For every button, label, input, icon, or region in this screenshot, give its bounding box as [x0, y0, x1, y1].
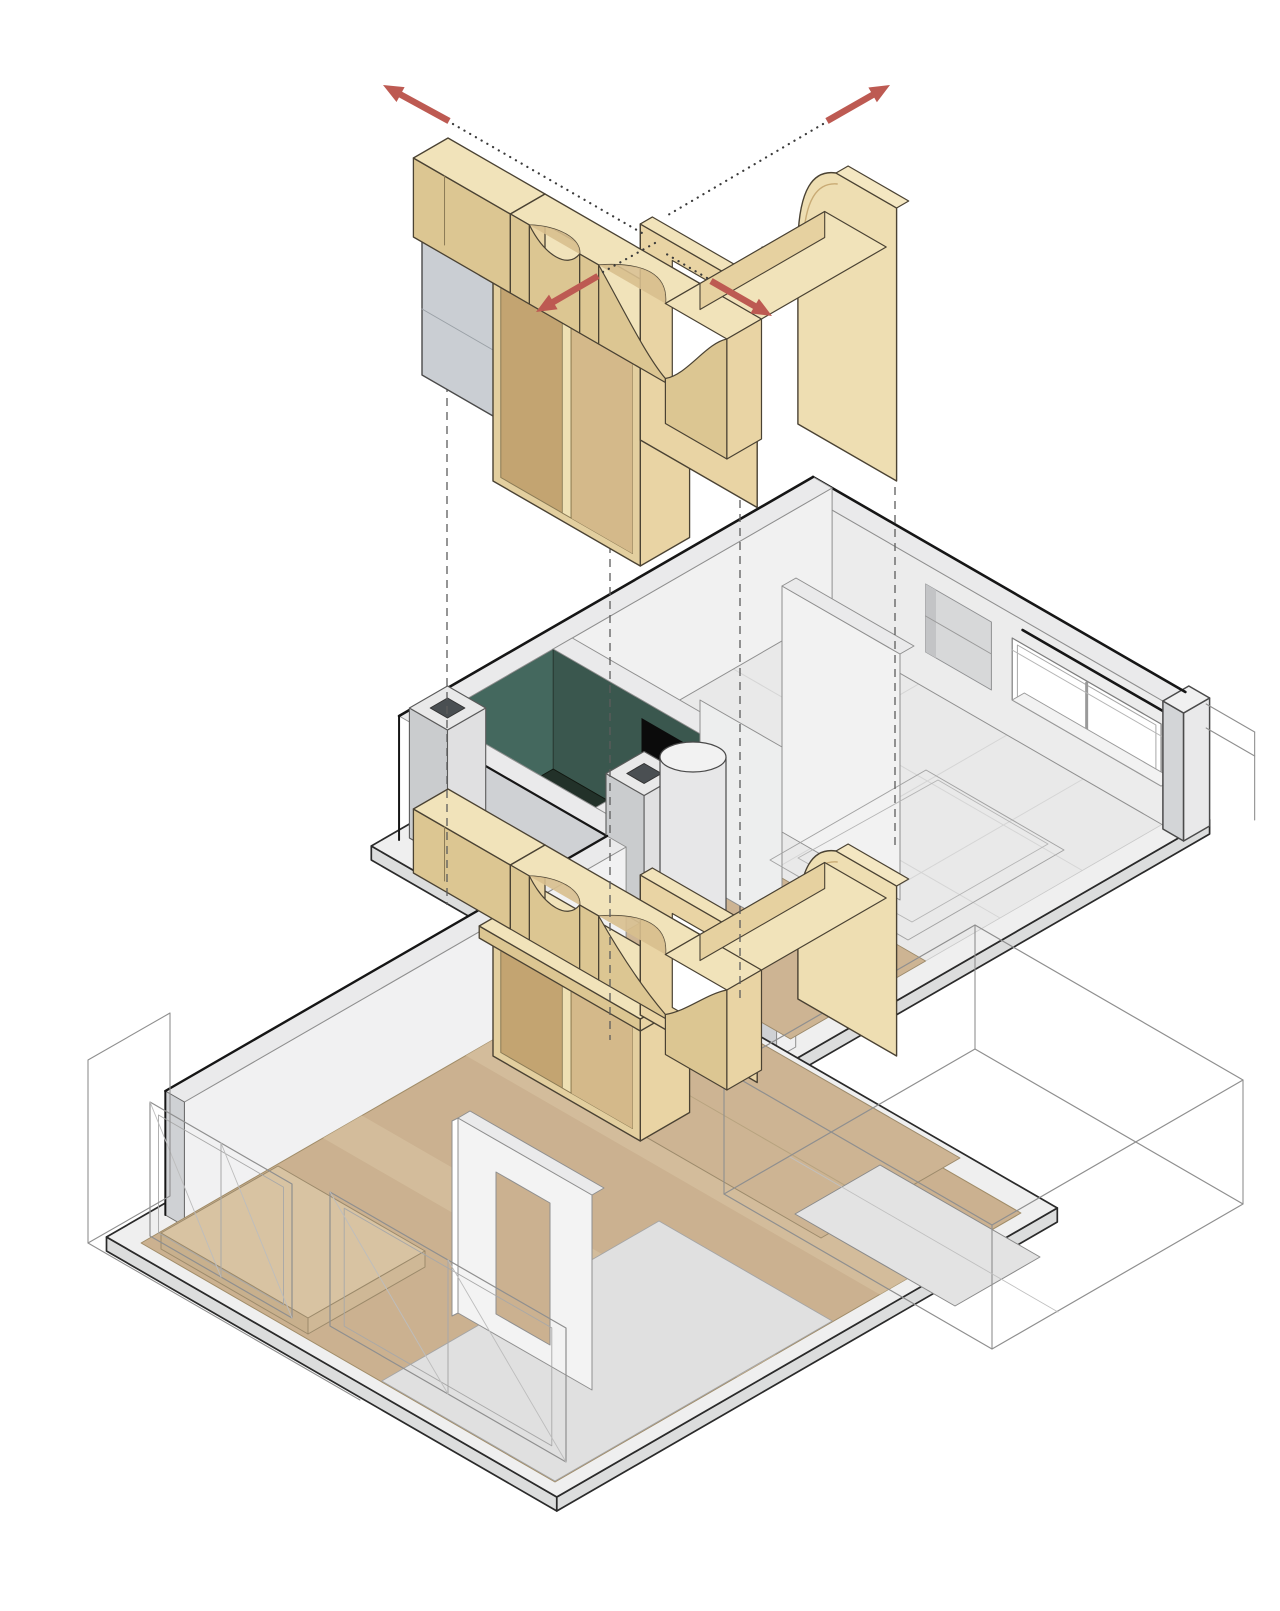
window-end-pillar-left-face	[1163, 701, 1184, 841]
diagram-canvas	[0, 0, 1280, 1611]
plan-beam-corner-side	[727, 970, 762, 1090]
arrow-up-right-shaft	[827, 92, 878, 121]
header-wireframe	[1206, 728, 1254, 756]
dotted-leader-line	[668, 124, 823, 215]
living-partition-doorway	[496, 1172, 550, 1345]
living-nw-wall-end	[165, 1091, 184, 1226]
unit-wardrobe-divider	[562, 323, 571, 518]
window-end-pillar-right-face	[1184, 698, 1210, 841]
unit-wardrobe-interior-right	[572, 329, 633, 554]
living-partition-edge	[452, 1118, 458, 1316]
unit-beam-beam-face	[510, 214, 529, 304]
plan-beam-beam-face	[580, 905, 599, 980]
unit-beam-beam-face	[580, 254, 599, 344]
plan-beam-beam-face	[510, 865, 529, 940]
plan-wardrobe-divider	[562, 986, 571, 1093]
axonometric-diagram	[0, 0, 1280, 1611]
round-column-top	[660, 742, 726, 772]
unit-beam-corner-side	[727, 319, 762, 459]
arrow-up-left-shaft	[395, 92, 449, 121]
header-wireframe	[1206, 704, 1254, 732]
